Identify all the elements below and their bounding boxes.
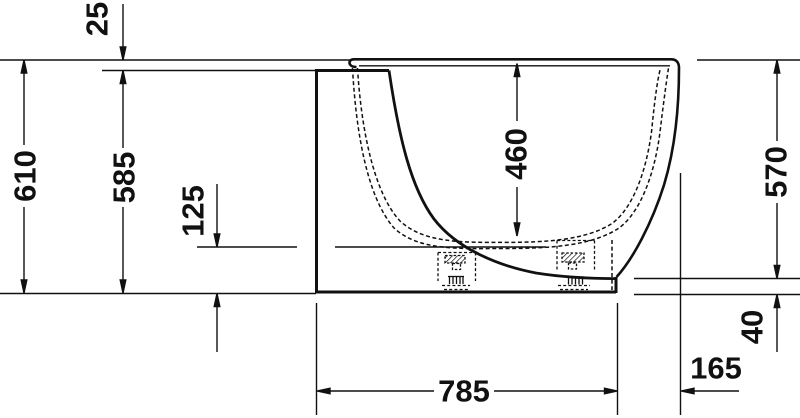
dimension-label-165: 165 [690, 351, 742, 386]
dimension-570: 570 [759, 60, 794, 279]
dimension-label-25: 25 [80, 2, 115, 36]
dimension-label-40: 40 [735, 310, 770, 344]
technical-drawing: 610 585 25 125 460 [0, 0, 800, 418]
dimension-460: 460 [499, 64, 534, 237]
foot-right-bolt [569, 263, 577, 269]
dimension-40: 40 [735, 295, 780, 353]
foot-right-bracket-fitting [562, 253, 584, 262]
arrowhead-down [120, 47, 126, 60]
dimension-label-610: 610 [8, 150, 43, 202]
dimension-label-570: 570 [759, 146, 794, 198]
arrowhead-down [514, 223, 520, 236]
bathtub-dimension-drawing: 610 585 25 125 460 [0, 0, 800, 418]
arrowhead-up [774, 295, 780, 308]
dimension-585: 585 [107, 71, 142, 294]
arrowhead-up [120, 71, 126, 84]
dimension-label-125: 125 [176, 185, 211, 237]
dimension-label-785: 785 [438, 374, 490, 409]
foot-left-base-plate [442, 286, 470, 290]
arrowhead-up [774, 60, 780, 73]
foot-left [438, 253, 476, 290]
dimension-25: 25 [80, 2, 126, 60]
foot-left-bolt [453, 264, 461, 270]
arrowhead-down [774, 266, 780, 279]
foot-left-drain-fitting [445, 256, 465, 264]
dimension-label-585: 585 [107, 152, 142, 204]
dimension-label-460: 460 [499, 128, 534, 180]
arrowhead-up [21, 60, 27, 73]
dimension-125: 125 [176, 184, 220, 352]
extension-lines [0, 60, 800, 415]
dimension-165: 165 [681, 351, 742, 394]
arrowhead-left [317, 388, 330, 394]
arrowhead-down [120, 280, 126, 293]
bathtub-outline [315, 59, 679, 293]
arrowhead-left [681, 388, 694, 394]
arrowhead-up [214, 294, 220, 307]
arrowhead-right [605, 388, 618, 394]
arrowhead-down [214, 234, 220, 247]
dimension-785: 785 [317, 374, 618, 409]
dimension-610: 610 [8, 60, 43, 293]
foot-left-hatch-comb [448, 277, 464, 285]
foot-right [557, 241, 595, 290]
foot-right-base-plate [558, 286, 590, 290]
arrowhead-down [21, 280, 27, 293]
